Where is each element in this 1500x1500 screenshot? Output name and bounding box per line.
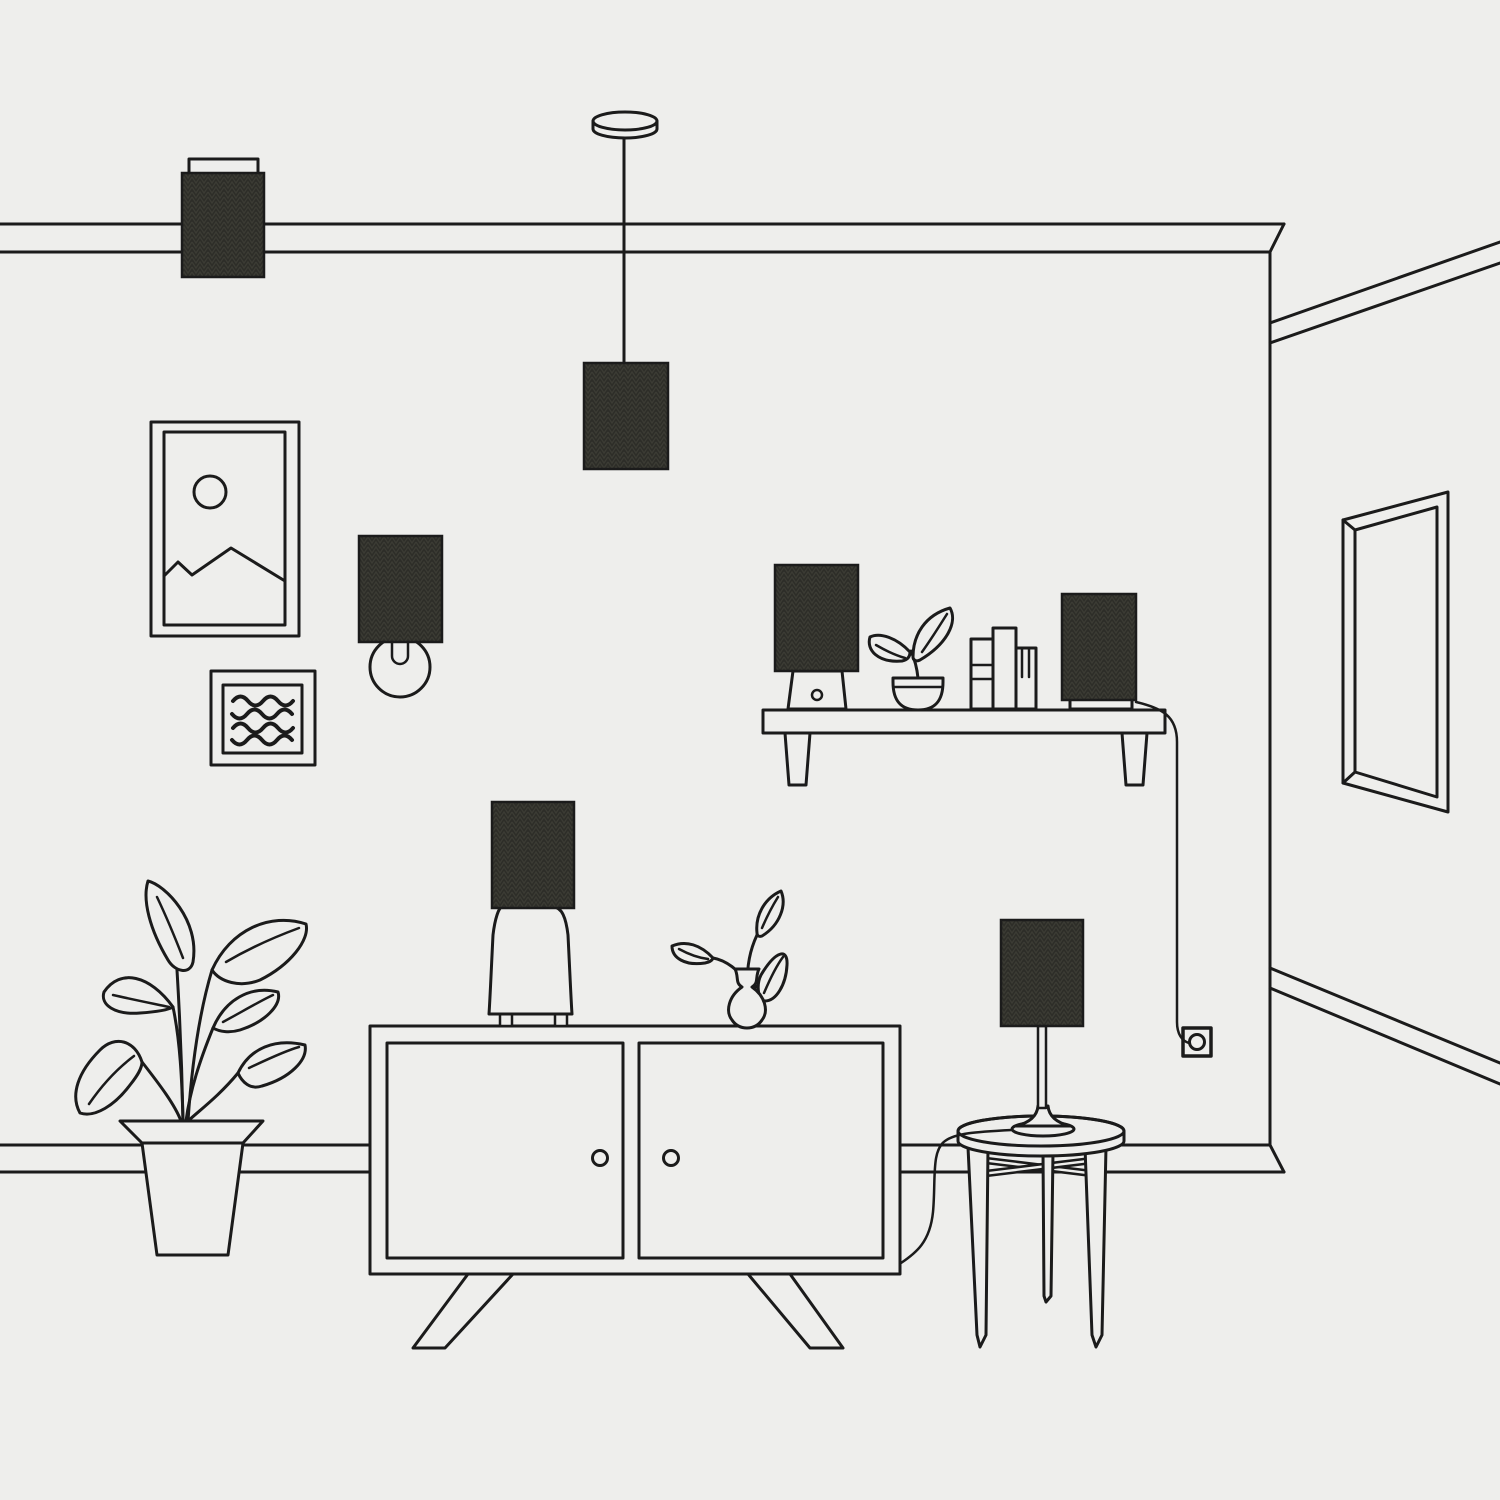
shelf-lamp-shade <box>775 565 858 671</box>
book <box>971 639 994 709</box>
wall-art-frame <box>151 422 299 636</box>
sideboard-leg-left <box>413 1274 513 1348</box>
sideboard-lamp-base <box>489 907 572 1014</box>
vase-leaf <box>672 943 713 963</box>
room-scene-svg <box>0 0 1500 1500</box>
right-wall-molding <box>1270 242 1500 343</box>
flush-ceiling-lamp <box>182 159 264 277</box>
table-lamp <box>1001 920 1083 1136</box>
table-lamp-shade <box>1001 920 1083 1026</box>
right-wall-baseboard <box>1270 968 1500 1084</box>
shelf-board <box>763 710 1165 733</box>
wall-sconce <box>359 536 442 697</box>
sconce-shade <box>359 536 442 642</box>
wall-mirror <box>1343 492 1448 812</box>
book <box>993 628 1016 709</box>
wall-shelf <box>763 710 1165 785</box>
shelf-plant <box>869 608 952 710</box>
floor-plant <box>76 881 307 1255</box>
table-leg-left <box>968 1147 988 1347</box>
book <box>1016 648 1036 709</box>
squiggle-frame <box>211 671 315 765</box>
sideboard-lamp <box>489 802 574 1026</box>
shelf-bracket-right <box>1122 733 1147 785</box>
side-table <box>958 1116 1124 1347</box>
sideboard-leg-right <box>748 1274 843 1348</box>
shelf-table-lamp <box>775 565 858 709</box>
bud-vase <box>672 891 787 1028</box>
vase-leaf <box>758 954 787 1001</box>
room-illustration <box>0 0 1500 1500</box>
shelf-bracket-left <box>785 733 810 785</box>
plant-pot-rim <box>120 1121 263 1143</box>
shelf-plant-pot <box>893 678 943 710</box>
plant-pot <box>142 1143 243 1255</box>
flush-lamp-shade <box>182 173 264 277</box>
sconce-socket <box>392 640 408 664</box>
pendant-shade <box>584 363 668 469</box>
box-lamp-shade <box>1062 594 1136 700</box>
sideboard <box>370 1026 900 1348</box>
shelf-books <box>971 628 1036 709</box>
sideboard-door-left <box>387 1043 623 1258</box>
table-lamp-stem <box>1038 1026 1046 1108</box>
sideboard-lamp-shade <box>492 802 574 908</box>
table-leg-right <box>1085 1147 1106 1347</box>
pendant-lamp <box>584 112 668 469</box>
shelf-box-lamp <box>1062 594 1136 709</box>
table-leg-middle <box>1043 1152 1053 1302</box>
